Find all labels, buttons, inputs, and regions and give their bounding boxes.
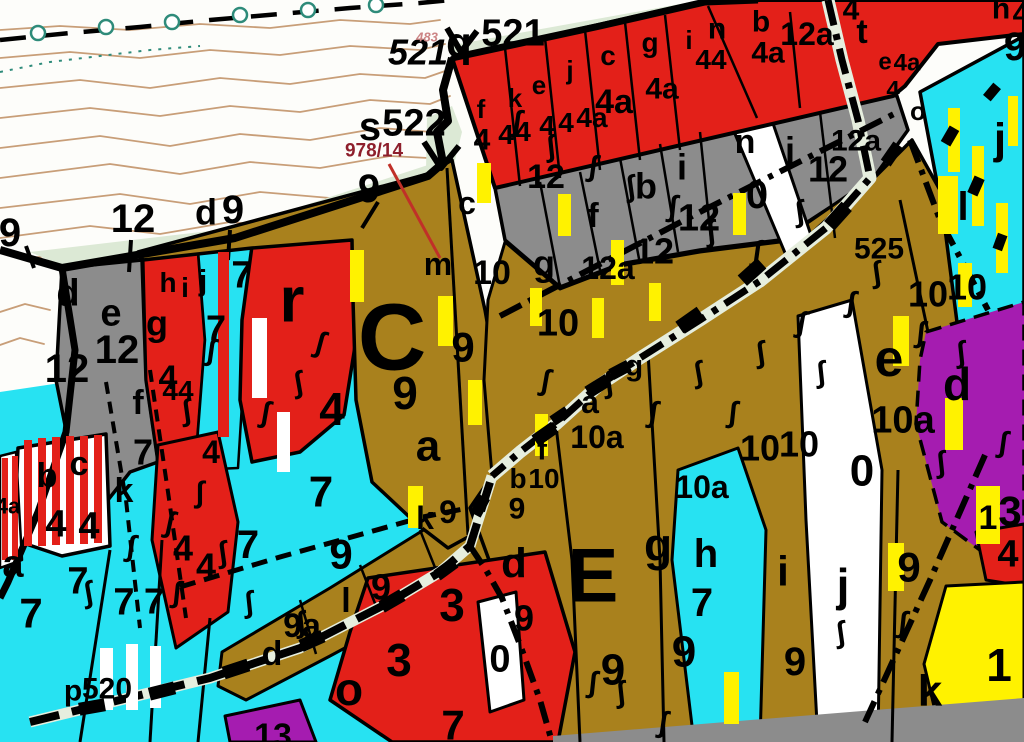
parcel-label-4a: 4a: [645, 73, 679, 106]
parcel-label-12: 12: [111, 197, 156, 241]
parcel-label-k: k: [918, 666, 943, 715]
yellow-bar: [724, 672, 739, 724]
parcel-label-4: 4: [474, 124, 491, 157]
parcel-label-9: 9: [329, 531, 352, 578]
parcel-label-10a: 10a: [675, 469, 729, 505]
parcel-label-7: 7: [206, 308, 226, 349]
parcel-label-9: 9: [371, 567, 391, 608]
parcel-label-7: 7: [441, 702, 464, 742]
parcel-label-4: 4: [45, 503, 66, 545]
parcel-label-7: 7: [113, 581, 134, 623]
yellow-bar: [938, 176, 958, 234]
parcel-label-f: f: [132, 384, 144, 422]
parcel-label-d: d: [56, 272, 79, 314]
parcel-label-0: 0: [850, 446, 874, 495]
forest-parcel-map[interactable]: ∫∫∫∫∫∫∫∫∫∫∫∫∫∫∫∫∫∫∫∫∫∫∫∫∫∫∫∫∫∫∫∫∫∫∫∫∫∫∫∫…: [0, 0, 1024, 742]
parcel-label-i: i: [181, 272, 189, 303]
parcel-label-4: 4: [515, 116, 531, 147]
parcel-label-9: 9: [392, 367, 418, 419]
parcel-label-e: e: [532, 70, 546, 100]
parcel-label-521: 521: [481, 12, 544, 54]
parcel-label-h: h: [992, 0, 1010, 26]
parcel-label-g: g: [625, 350, 643, 383]
parcel-label-10: 10: [908, 274, 948, 315]
survey-point-circle: [165, 15, 179, 29]
yellow-bar: [649, 283, 661, 321]
parcel-label-f: f: [587, 197, 599, 235]
parcel-label-7: 7: [691, 581, 713, 625]
yellow-bar: [592, 298, 604, 338]
parcel-label-10: 10: [537, 302, 579, 344]
yellow-bar: [558, 194, 571, 236]
tick-12: [129, 240, 131, 272]
parcel-label-b: b: [37, 457, 58, 495]
parcel-label-t: t: [856, 13, 867, 51]
parcel-label-f: f: [537, 434, 548, 467]
survey-point-circle: [31, 26, 45, 40]
parcel-label-9: 9: [897, 544, 920, 591]
parcel-label-4: 4: [78, 505, 99, 547]
parcel-label-a: a: [2, 543, 24, 585]
parcel-label-9a: 9a: [283, 607, 322, 645]
parcel-label-0: 0: [489, 638, 510, 680]
contour-line: [0, 304, 50, 312]
parcel-label-k: k: [416, 500, 434, 536]
parcel-label-9: 9: [601, 645, 625, 694]
parcel-label-12: 12: [678, 197, 720, 239]
parcel-label-10: 10: [473, 254, 511, 292]
parcel-label-l: l: [957, 185, 968, 229]
parcel-label-12: 12: [45, 347, 90, 391]
parcel-label-4: 4: [498, 119, 514, 150]
parcel-label-b: b: [635, 166, 657, 207]
parcel-label-4: 4: [997, 533, 1018, 575]
parcel-label-c: c: [600, 40, 616, 71]
survey-point-circle: [301, 3, 315, 17]
parcel-label-10: 10: [528, 463, 559, 494]
parcel-label-3: 3: [998, 488, 1021, 535]
parcel-label-k: k: [115, 472, 134, 510]
survey-point-circle: [233, 8, 247, 22]
parcel-label-4: 4: [173, 528, 193, 569]
yellow-bar: [468, 380, 482, 425]
parcel-label-1: 1: [986, 639, 1012, 691]
parcel-label-d: d: [501, 540, 527, 587]
parcel-label-c: c: [70, 445, 89, 483]
parcel-label-4: 4: [202, 434, 220, 470]
parcel-label-9: 9: [0, 211, 21, 255]
parcel-label-i: i: [777, 548, 789, 595]
parcel-label-f: f: [477, 94, 486, 124]
parcel-label-7: 7: [67, 560, 88, 602]
contour-line: [0, 44, 445, 58]
parcel-label-13: 13: [254, 717, 292, 742]
survey-line-layer: [0, 0, 450, 72]
parcel-label-4a: 4a: [894, 49, 921, 76]
parcel-label-3: 3: [439, 579, 465, 631]
parcel-label-j: j: [993, 114, 1006, 163]
parcel-label-12: 12: [95, 328, 140, 372]
parcel-label-3: 3: [386, 634, 412, 686]
parcel-label-10a: 10a: [871, 399, 935, 441]
parcel-label-9: 9: [451, 324, 474, 371]
parcel-label-i: i: [685, 25, 692, 55]
yellow-bar: [1008, 96, 1018, 146]
map-viewport[interactable]: ∫∫∫∫∫∫∫∫∫∫∫∫∫∫∫∫∫∫∫∫∫∫∫∫∫∫∫∫∫∫∫∫∫∫∫∫∫∫∫∫…: [0, 0, 1024, 742]
white-bar: [277, 412, 290, 472]
parcel-label-m: m: [424, 246, 452, 282]
survey-point-circle: [369, 0, 383, 12]
parcel-label-978/14: 978/14: [345, 141, 404, 162]
parcel-label-b: b: [752, 6, 770, 39]
parcel-label-j: j: [836, 559, 850, 611]
contour-line: [0, 20, 440, 30]
parcel-label-0: 0: [746, 173, 768, 217]
parcel-label-b: b: [509, 463, 526, 494]
parcel-label-10: 10: [779, 424, 819, 465]
parcel-label-522: 522: [382, 102, 445, 144]
parcel-label-9: 9: [514, 598, 534, 639]
white-bar: [252, 318, 267, 398]
parcel-label-9: 9: [1004, 25, 1024, 69]
parcel-label-12a: 12a: [831, 125, 881, 158]
green-dotted-line: [0, 46, 200, 72]
parcel-label-g: g: [146, 303, 168, 344]
parcel-label-7: 7: [309, 467, 333, 516]
parcel-label-7: 7: [144, 581, 164, 622]
parcel-label-l: l: [341, 582, 350, 620]
parcel-label-483: 483: [415, 30, 438, 45]
parcel-label-7: 7: [231, 254, 252, 296]
parcel-label-e: e: [875, 330, 904, 388]
parcel-label-k: k: [508, 83, 523, 113]
parcel-label-h: h: [694, 532, 718, 576]
parcel-label-n: n: [735, 123, 756, 161]
contour-line: [0, 338, 44, 345]
parcel-label-n: n: [708, 13, 726, 46]
parcel-label-12: 12: [634, 231, 674, 272]
parcel-label-q: q: [446, 19, 472, 66]
parcel-label-o: o: [910, 96, 926, 126]
parcel-label-9: 9: [784, 640, 806, 684]
parcel-label-c: c: [458, 185, 476, 221]
parcel-label-g: g: [644, 519, 672, 571]
parcel-label-E: E: [568, 534, 619, 619]
parcel-label-10: 10: [740, 428, 780, 469]
parcel-label-10: 10: [947, 267, 987, 308]
parcel-label-1: 1: [979, 499, 998, 537]
parcel-label-4: 4: [319, 383, 345, 435]
parcel-label-4: 4: [539, 110, 555, 141]
parcel-label-a: a: [581, 384, 599, 420]
parcel-label-j: j: [784, 130, 795, 171]
parcel-label-o: o: [335, 663, 363, 715]
parcel-label-g: g: [641, 27, 658, 58]
parcel-label-j: j: [565, 55, 573, 85]
parcel-label-r: r: [280, 263, 305, 335]
yellow-bar: [477, 163, 491, 203]
parcel-label-525: 525: [854, 233, 904, 266]
parcel-label-7: 7: [19, 590, 42, 637]
parcel-label-j: j: [198, 265, 207, 298]
yellow-bar: [733, 193, 746, 235]
parcel-label-12a: 12a: [581, 250, 635, 286]
parcel-label-i: i: [677, 147, 687, 188]
parcel-label-9: 9: [439, 494, 457, 530]
red-bar: [24, 440, 32, 546]
parcel-label-a: a: [416, 421, 441, 470]
parcel-label-d: d: [943, 358, 971, 410]
parcel-label-4a: 4a: [595, 83, 634, 121]
parcel-label-12: 12: [527, 158, 565, 196]
parcel-label-10a: 10a: [570, 419, 624, 455]
survey-point-circle: [99, 20, 113, 34]
contour-line: [0, 70, 448, 88]
parcel-label-7: 7: [237, 523, 259, 567]
parcel-label-h: h: [159, 267, 176, 298]
parcel-label-44: 44: [162, 375, 194, 406]
parcel-label-12a: 12a: [780, 16, 834, 52]
parcel-label-e: e: [878, 48, 891, 75]
parcel-label-g: g: [533, 243, 555, 284]
parcel-label-520: 520: [82, 673, 132, 706]
parcel-label-d: d: [195, 192, 217, 233]
parcel-label-4: 4: [558, 107, 574, 138]
parcel-label-9: 9: [358, 167, 380, 211]
parcel-label-9: 9: [509, 493, 526, 526]
parcel-label-4a: 4a: [0, 494, 21, 519]
parcel-label-p: p: [64, 675, 82, 708]
parcel-label-d: d: [262, 635, 283, 673]
parcel-label-9: 9: [672, 627, 696, 676]
parcel-label-7: 7: [133, 432, 153, 473]
parcel-label-4: 4: [886, 76, 900, 103]
parcel-label-9: 9: [222, 188, 244, 232]
parcel-label-4: 4: [196, 546, 216, 587]
parcel-label-44: 44: [695, 44, 727, 75]
